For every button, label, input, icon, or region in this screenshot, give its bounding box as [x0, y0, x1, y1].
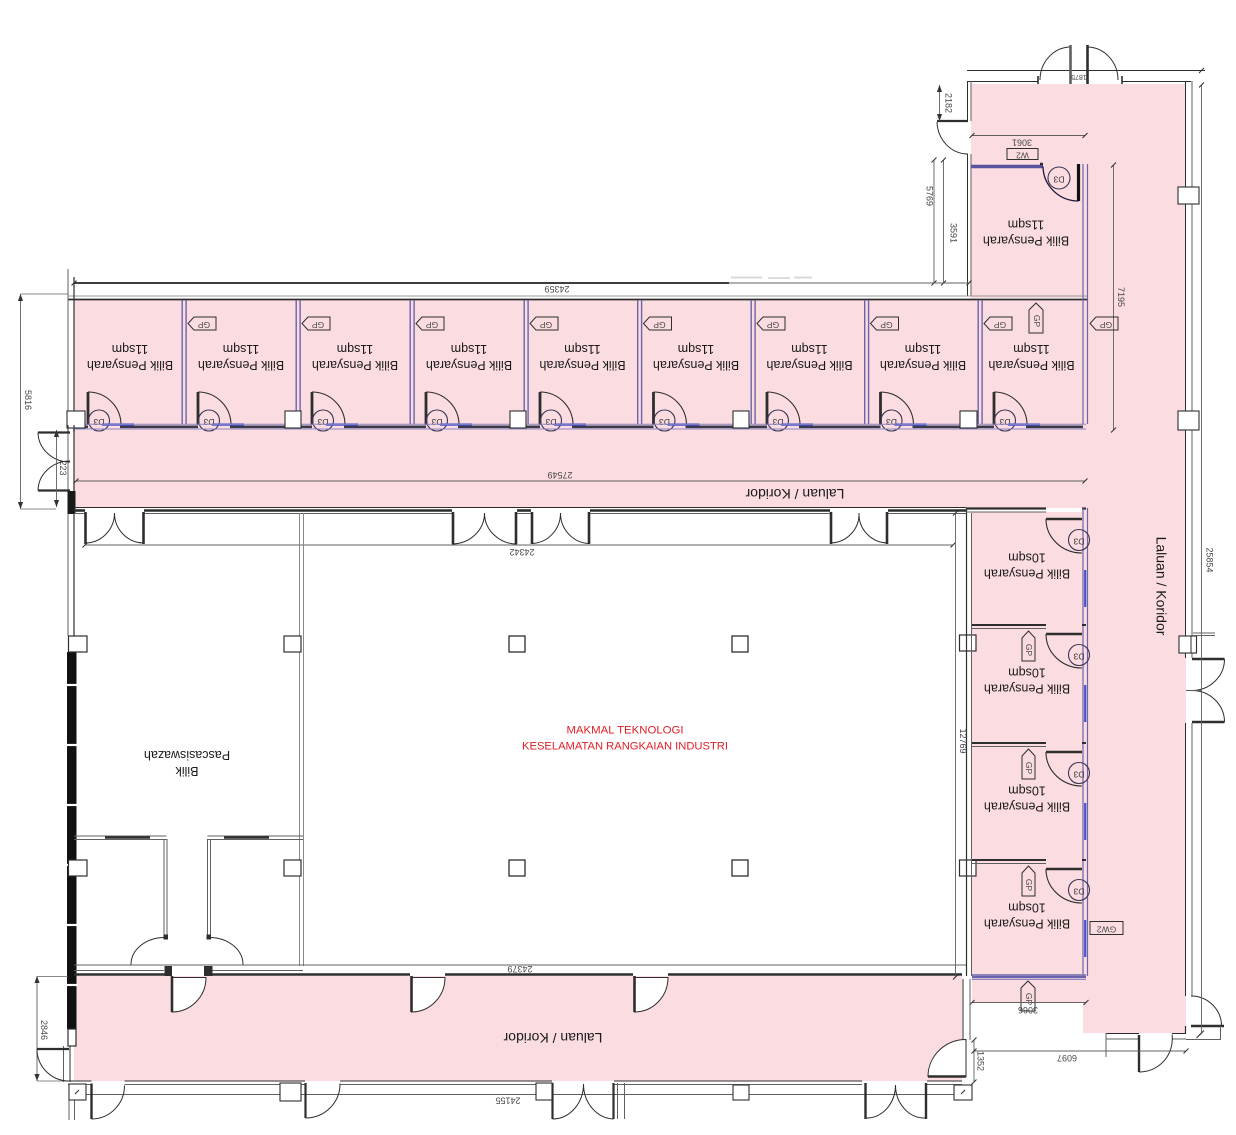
svg-text:KESELAMATAN RANGKAIAN INDUSTRI: KESELAMATAN RANGKAIAN INDUSTRI: [522, 740, 728, 752]
svg-text:11sqm: 11sqm: [337, 342, 374, 356]
svg-text:11sqm: 11sqm: [791, 342, 828, 356]
svg-text:W2: W2: [1016, 150, 1029, 160]
svg-text:10sqm: 10sqm: [1008, 901, 1046, 915]
svg-text:11sqm: 11sqm: [905, 342, 942, 356]
svg-text:D3: D3: [1073, 536, 1084, 546]
svg-text:D3: D3: [1073, 651, 1084, 661]
svg-text:GP: GP: [1032, 315, 1042, 328]
svg-text:2846: 2846: [39, 1020, 49, 1040]
svg-text:3591: 3591: [949, 223, 959, 243]
svg-text:GP: GP: [880, 320, 893, 330]
svg-text:11sqm: 11sqm: [564, 342, 601, 356]
svg-text:24342: 24342: [509, 547, 534, 557]
svg-text:GP: GP: [994, 320, 1007, 330]
svg-text:Laluan / Koridor: Laluan / Koridor: [503, 1030, 602, 1046]
svg-text:Laluan / Koridor: Laluan / Koridor: [745, 486, 844, 502]
svg-text:25854: 25854: [1205, 547, 1215, 572]
svg-text:3061: 3061: [1012, 138, 1032, 148]
svg-text:Bilik Pensyarah: Bilik Pensyarah: [880, 358, 966, 372]
svg-text:223: 223: [58, 460, 68, 475]
svg-text:MAKMAL TEKNOLOGI: MAKMAL TEKNOLOGI: [566, 725, 683, 737]
svg-text:27549: 27549: [547, 470, 572, 480]
svg-text:12769: 12769: [958, 728, 968, 753]
svg-text:GW2: GW2: [1097, 924, 1117, 934]
svg-text:Bilik Pensyarah: Bilik Pensyarah: [87, 358, 173, 372]
svg-text:Bilik Pensyarah: Bilik Pensyarah: [426, 358, 512, 372]
svg-text:11sqm: 11sqm: [451, 342, 488, 356]
svg-text:GP: GP: [1024, 762, 1034, 775]
svg-text:D3: D3: [1073, 769, 1084, 779]
svg-text:7195: 7195: [1116, 287, 1126, 307]
svg-text:11sqm: 11sqm: [223, 342, 260, 356]
svg-text:GP: GP: [653, 320, 666, 330]
svg-text:5769: 5769: [925, 186, 935, 206]
svg-text:Bilik Pensyarah: Bilik Pensyarah: [984, 567, 1070, 581]
svg-text:1875: 1875: [1071, 73, 1087, 80]
svg-text:11sqm: 11sqm: [678, 342, 715, 356]
svg-text:GP: GP: [1024, 644, 1034, 657]
svg-text:GP: GP: [1100, 320, 1113, 330]
svg-text:11sqm: 11sqm: [1008, 218, 1045, 232]
svg-text:Laluan / Koridor: Laluan / Koridor: [1153, 537, 1169, 636]
svg-text:10sqm: 10sqm: [1008, 784, 1046, 798]
svg-text:Pascasiswazah: Pascasiswazah: [144, 748, 230, 762]
svg-text:GP: GP: [540, 320, 553, 330]
svg-text:Bilik Pensyarah: Bilik Pensyarah: [198, 358, 284, 372]
svg-text:Bilik Pensyarah: Bilik Pensyarah: [766, 358, 852, 372]
svg-text:GP: GP: [426, 320, 439, 330]
svg-text:Bilik Pensyarah: Bilik Pensyarah: [984, 917, 1070, 931]
svg-text:11sqm: 11sqm: [112, 342, 149, 356]
svg-text:GP: GP: [1024, 879, 1034, 892]
svg-text:1352: 1352: [976, 1051, 986, 1071]
svg-text:24379: 24379: [507, 964, 532, 974]
svg-text:5816: 5816: [23, 390, 33, 410]
svg-text:10sqm: 10sqm: [1008, 551, 1046, 565]
svg-text:Bilik Pensyarah: Bilik Pensyarah: [653, 358, 739, 372]
svg-text:Bilik Pensyarah: Bilik Pensyarah: [983, 234, 1069, 248]
svg-text:GP: GP: [198, 320, 211, 330]
svg-text:6097: 6097: [1057, 1053, 1077, 1063]
svg-text:24155: 24155: [495, 1096, 520, 1106]
svg-text:11sqm: 11sqm: [1013, 342, 1050, 356]
svg-text:GP: GP: [767, 320, 780, 330]
svg-text:D3: D3: [1073, 886, 1084, 896]
svg-text:GP: GP: [1024, 993, 1034, 1006]
svg-text:D3: D3: [1053, 174, 1064, 184]
svg-text:24359: 24359: [544, 284, 569, 294]
svg-text:2182: 2182: [944, 93, 954, 113]
svg-text:10sqm: 10sqm: [1008, 666, 1046, 680]
svg-text:GP: GP: [312, 320, 325, 330]
svg-text:Bilik Pensyarah: Bilik Pensyarah: [984, 800, 1070, 814]
svg-text:Bilik Pensyarah: Bilik Pensyarah: [539, 358, 625, 372]
svg-text:3066: 3066: [1018, 1005, 1038, 1015]
svg-text:Bilik Pensyarah: Bilik Pensyarah: [988, 358, 1074, 372]
svg-text:Bilik Pensyarah: Bilik Pensyarah: [312, 358, 398, 372]
svg-text:Bilik: Bilik: [175, 764, 199, 778]
svg-text:Bilik Pensyarah: Bilik Pensyarah: [984, 682, 1070, 696]
